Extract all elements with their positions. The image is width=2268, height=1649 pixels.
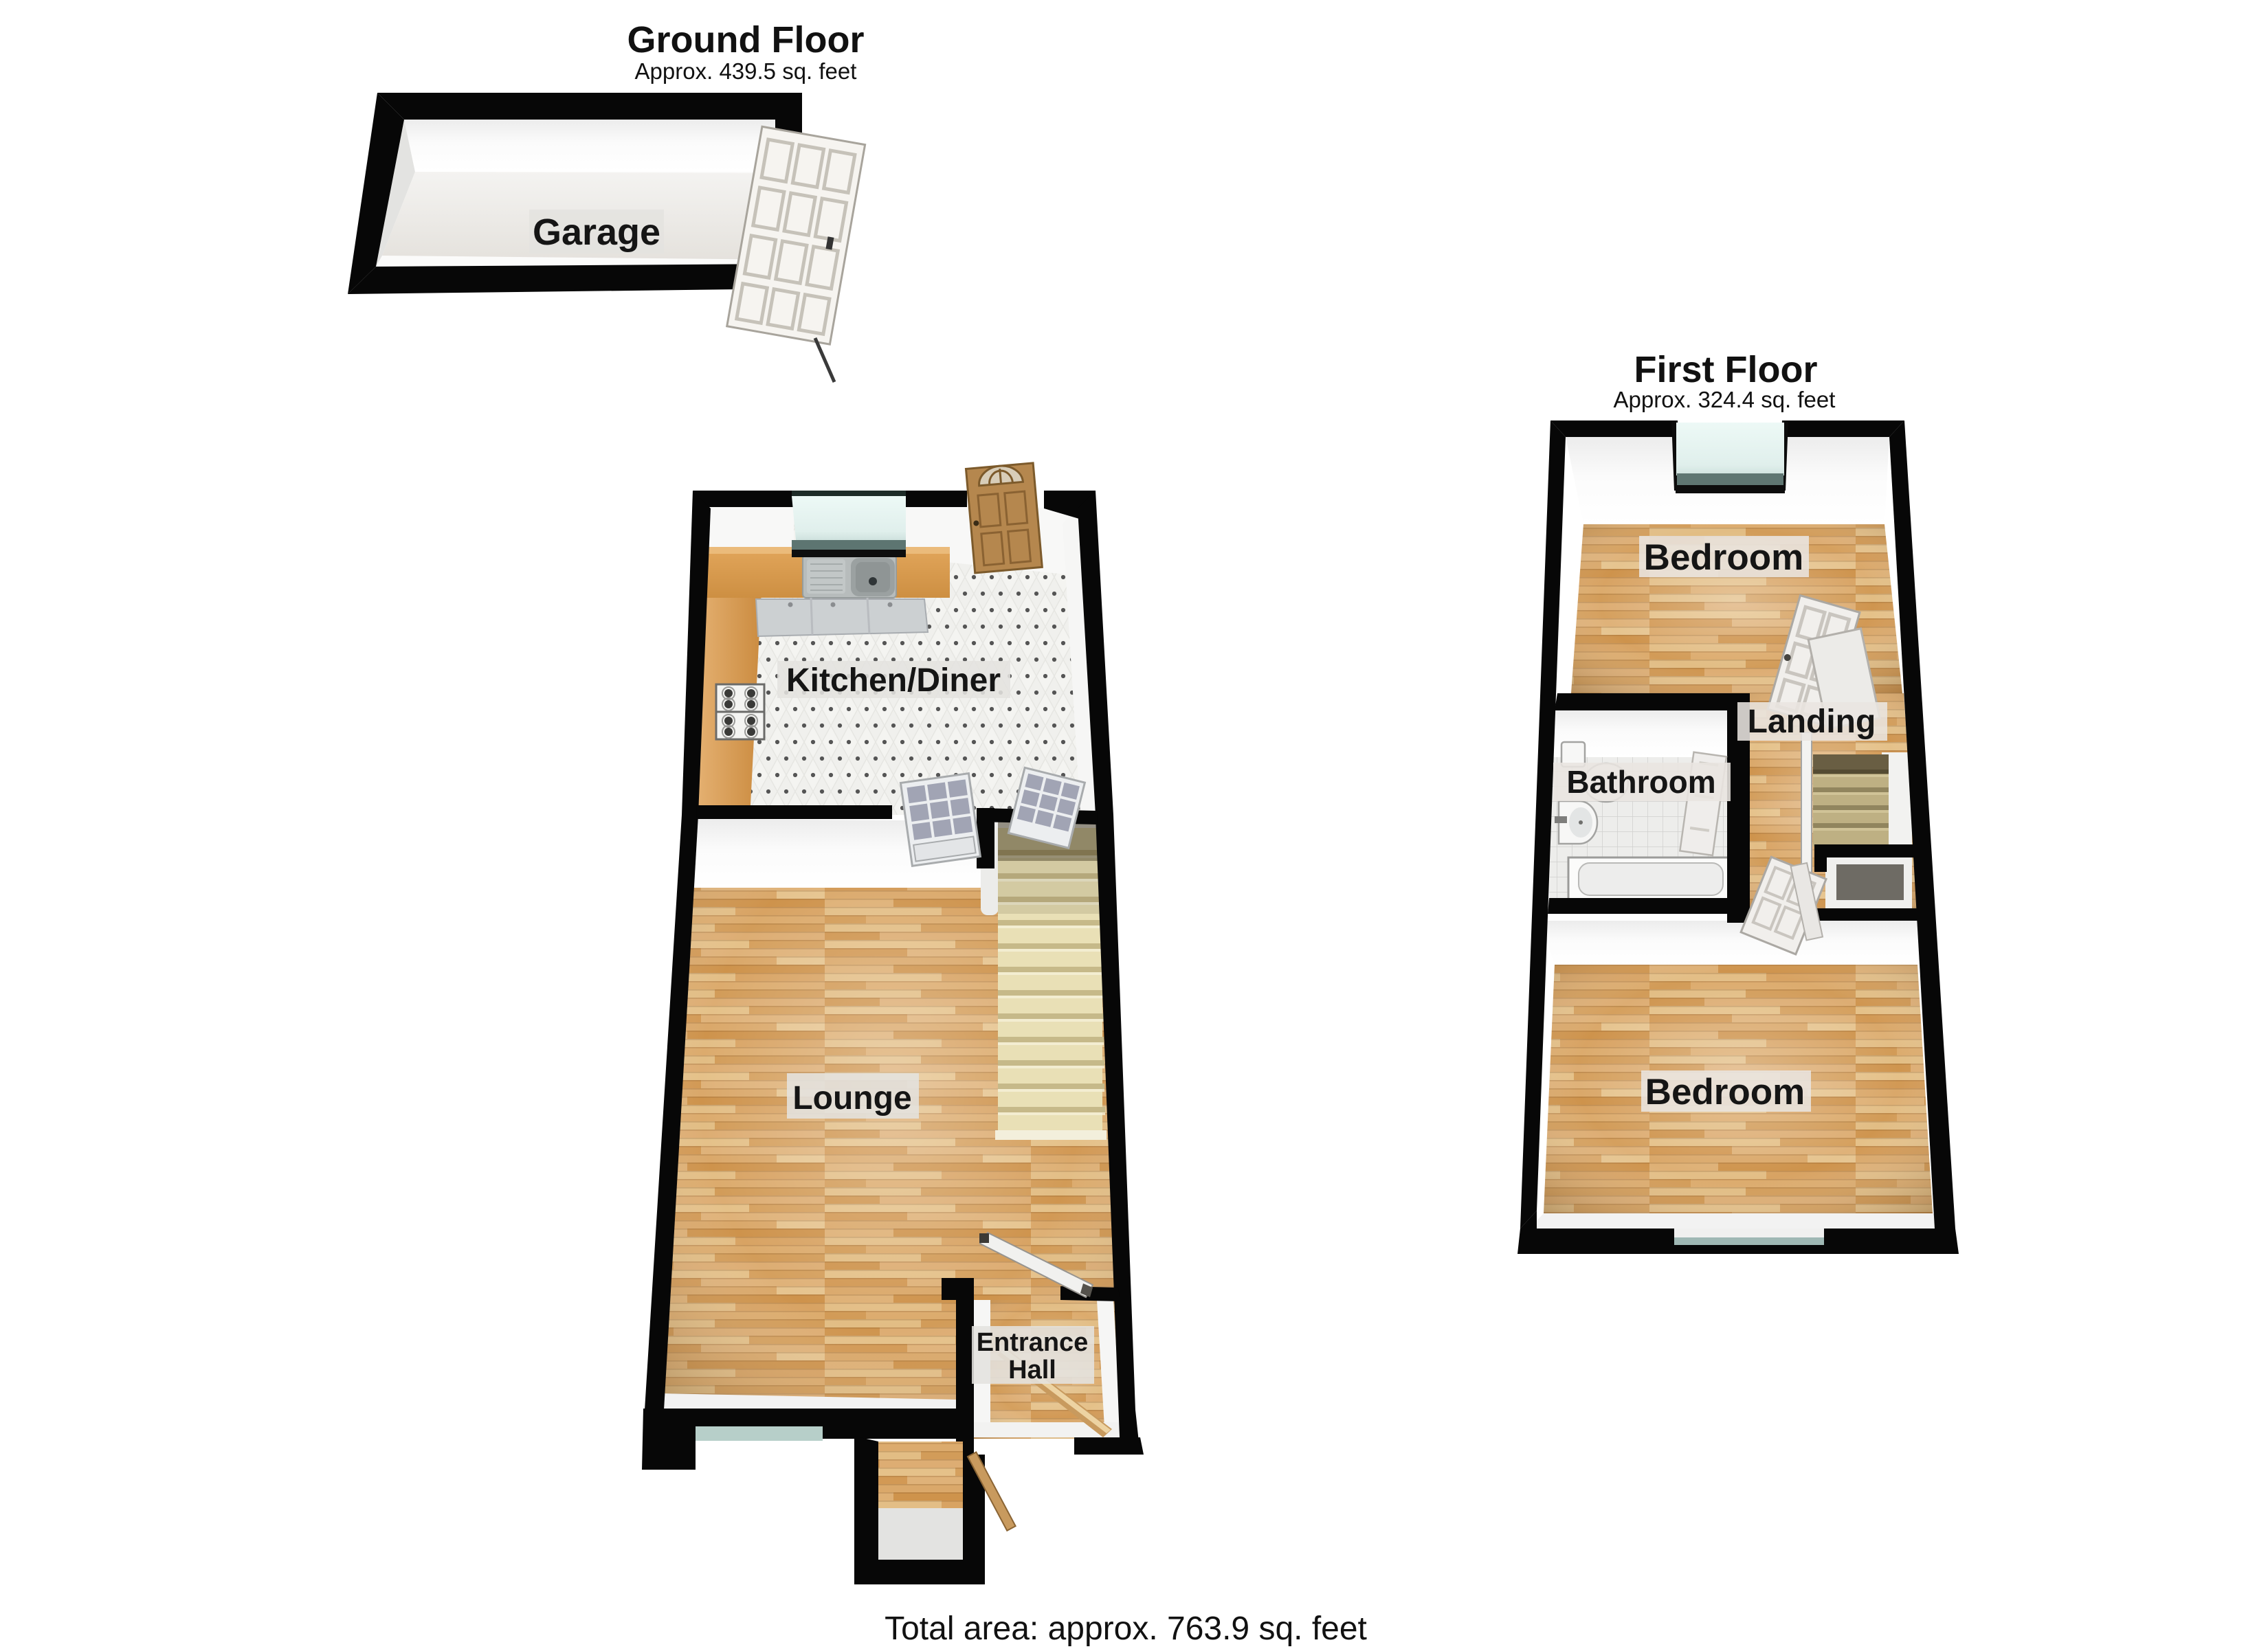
- svg-text:Landing: Landing: [1748, 704, 1876, 740]
- svg-text:Bedroom: Bedroom: [1645, 1072, 1805, 1112]
- svg-text:First Floor: First Floor: [1634, 349, 1818, 390]
- svg-text:Ground Floor: Ground Floor: [627, 19, 865, 60]
- svg-text:Approx. 439.5 sq. feet: Approx. 439.5 sq. feet: [635, 58, 857, 84]
- svg-text:Approx. 324.4 sq. feet: Approx. 324.4 sq. feet: [1614, 387, 1836, 412]
- svg-text:Garage: Garage: [533, 212, 660, 253]
- svg-text:Kitchen/Diner: Kitchen/Diner: [786, 662, 1001, 699]
- svg-text:Lounge: Lounge: [792, 1080, 911, 1117]
- svg-text:Entrance: Entrance: [977, 1328, 1089, 1357]
- svg-text:Total area: approx. 763.9 sq.: Total area: approx. 763.9 sq. feet: [885, 1611, 1367, 1647]
- svg-text:Bedroom: Bedroom: [1644, 537, 1804, 578]
- svg-text:Bathroom: Bathroom: [1566, 764, 1715, 800]
- svg-text:Hall: Hall: [1008, 1356, 1056, 1384]
